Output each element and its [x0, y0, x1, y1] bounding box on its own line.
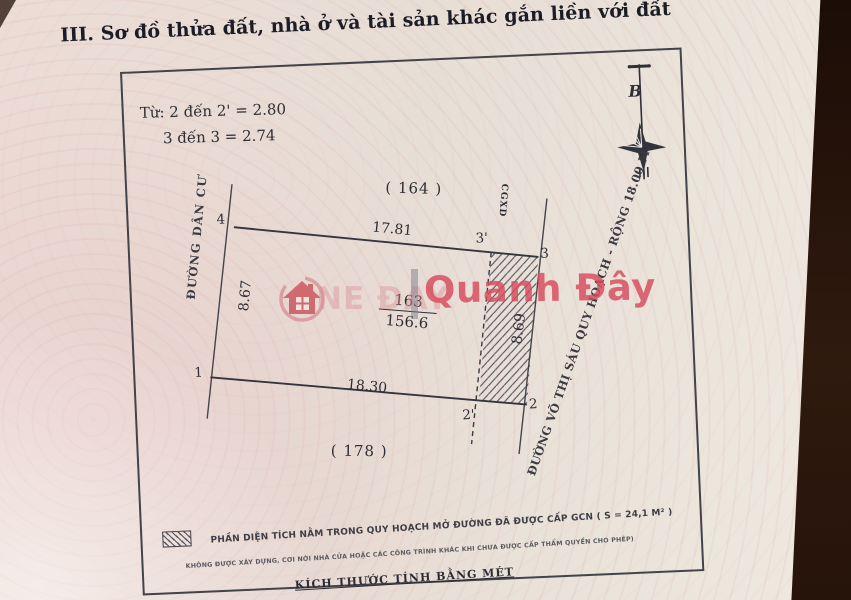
corner-2p-label: 2': [462, 407, 475, 424]
dim-left-label: 8.67: [236, 279, 255, 312]
document-sheet: III. Sơ đồ thửa đất, nhà ở và tài sản kh…: [120, 48, 700, 592]
legend-hatch-swatch: [162, 530, 192, 547]
adjacent-parcel-bottom-label: ( 178 ): [331, 442, 388, 460]
parcel-id-block: 163 156.6: [375, 289, 440, 333]
section-title: III. Sơ đồ thửa đất, nhà ở và tài sản kh…: [60, 0, 671, 47]
diagram-frame: Từ: 2 đến 2' = 2.80 3 đến 3 = 2.74: [120, 47, 704, 595]
adjacent-parcel-top-label: ( 164 ): [385, 179, 442, 198]
corner-3-label: 3: [540, 245, 549, 261]
corner-2-label: 2: [529, 396, 538, 412]
corner-4-label: 4: [216, 212, 225, 228]
photo-background: III. Sơ đồ thửa đất, nhà ở và tài sản kh…: [0, 0, 851, 600]
corner-1-label: 1: [194, 365, 203, 381]
photo-dark-corner-topleft: [0, 0, 16, 28]
corner-3p-label: 3': [475, 230, 488, 247]
compass-north-label: B: [628, 81, 642, 101]
